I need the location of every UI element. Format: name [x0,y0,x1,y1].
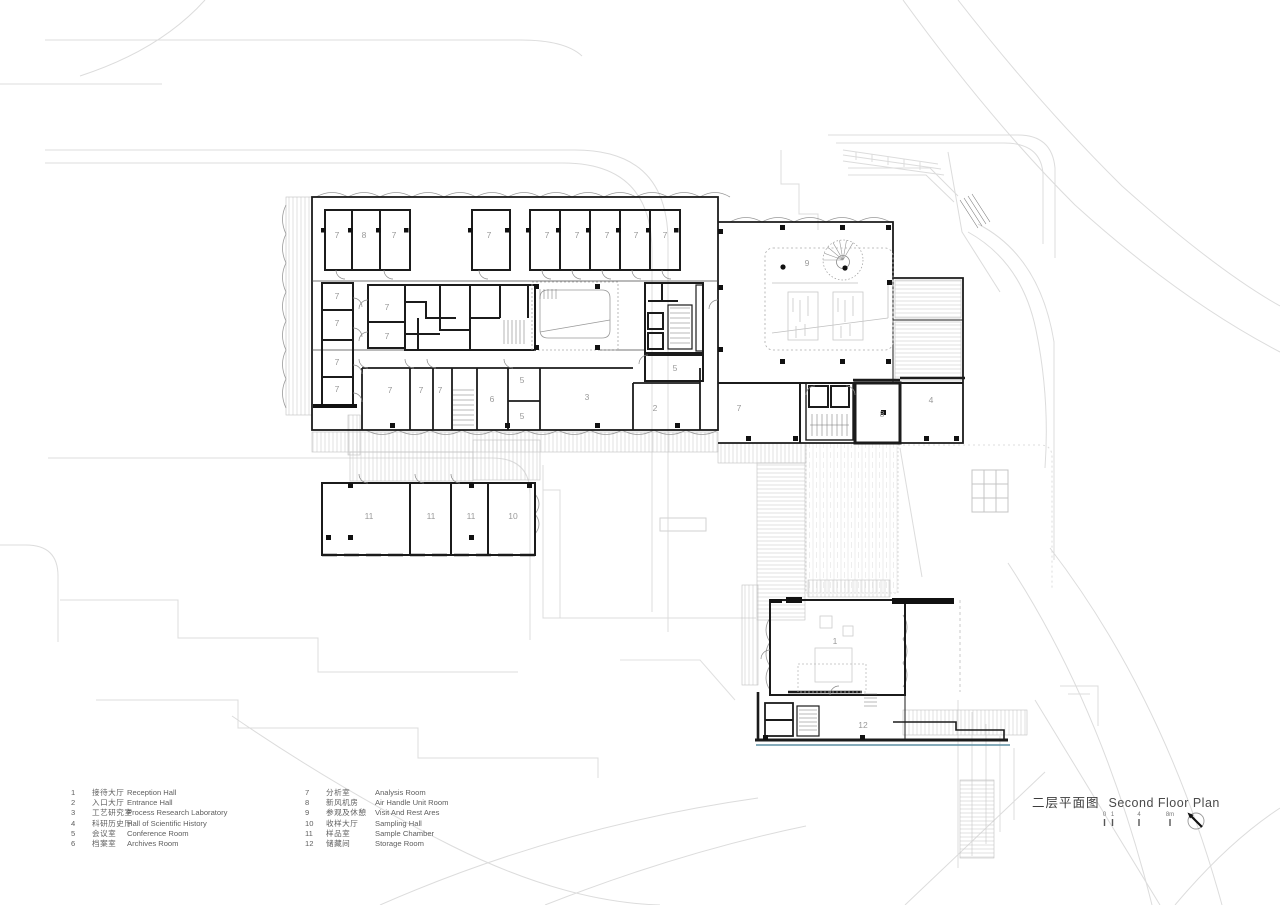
legend-name-en: Visit And Rest Ares [375,808,439,818]
legend-number: 1 [71,788,92,798]
floor-plan-sheet: { "title": { "zh": "二层平面图", "en": "Secon… [0,0,1280,905]
floor-plan-drawing: 787777777777777777655325978411111110112 … [0,0,1280,905]
legend-number: 6 [71,839,92,849]
legend-row: 3工艺研究室Process Research Laboratory [71,808,227,818]
legend-column-1: 1接待大厅Reception Hall2入口大厅Entrance Hall3工艺… [71,788,227,849]
scale-tick-8m: 8m [1166,812,1174,818]
legend-row: 2入口大厅Entrance Hall [71,798,227,808]
room-number-label: 2 [653,403,658,413]
legend-name-zh: 分析室 [326,788,375,798]
legend-name-en: Process Research Laboratory [127,808,227,818]
legend-name-zh: 参观及休憩 [326,808,375,818]
hall1-furniture [798,616,866,692]
legend-name-en: Reception Hall [127,788,176,798]
legend-number: 5 [71,829,92,839]
legend-name-zh: 新风机房 [326,798,375,808]
legend-name-en: Sample Chamber [375,829,434,839]
room-number-label: 7 [419,385,424,395]
room-number-label: 7 [438,385,443,395]
legend-name-zh: 样品室 [326,829,375,839]
legend-name-zh: 收样大厅 [326,819,375,829]
room-number-label: 12 [858,720,868,730]
legend-number: 9 [305,808,326,818]
legend-name-en: Analysis Room [375,788,426,798]
legend-row: 12储藏间Storage Room [305,839,448,849]
room-number-label: 1 [833,636,838,646]
legend-name-en: Conference Room [127,829,189,839]
legend-name-en: Hall of Scientific History [127,819,207,829]
legend-number: 11 [305,829,326,839]
exhibit-zone [765,248,893,350]
room-number-label: 5 [520,375,525,385]
room-number-label: 7 [335,230,340,240]
hatched-areas [286,197,1027,858]
room-number-label: 7 [634,230,639,240]
scale-bar: 0 1 4 8m [1103,812,1174,826]
room-number-label: 7 [388,385,393,395]
drawing-title-zh: 二层平面图 [1032,792,1100,811]
room-number-label: 3 [585,392,590,402]
room-number-label: 8 [880,409,885,419]
legend-number: 2 [71,798,92,808]
drawing-title-en: Second Floor Plan [1109,796,1220,810]
legend-name-zh: 工艺研究室 [92,808,127,818]
legend-row: 1接待大厅Reception Hall [71,788,227,798]
legend-number: 4 [71,819,92,829]
room-number-label: 8 [362,230,367,240]
site-context [0,0,1280,905]
legend-name-en: Air Handle Unit Room [375,798,448,808]
room-number-label: 9 [805,258,810,268]
legend-row: 9参观及休憩Visit And Rest Ares [305,808,448,818]
legend-row: 7分析室Analysis Room [305,788,448,798]
room-number-label: 4 [929,395,934,405]
scale-tick-1: 1 [1111,812,1115,818]
legend-row: 5会议室Conference Room [71,829,227,839]
legend-number: 8 [305,798,326,808]
legend-name-zh: 储藏间 [326,839,375,849]
room-number-label: 5 [673,363,678,373]
room-number-label: 7 [545,230,550,240]
spiral-stair [823,240,863,280]
room-number-label: 7 [487,230,492,240]
room-number-label: 7 [335,318,340,328]
legend-number: 12 [305,839,326,849]
legend-name-zh: 会议室 [92,829,127,839]
room-number-label: 7 [385,302,390,312]
room-number-label: 10 [508,511,518,521]
room-number-label: 7 [737,403,742,413]
legend-name-en: Entrance Hall [127,798,173,808]
room-number-label: 7 [335,291,340,301]
room-number-label: 7 [575,230,580,240]
legend-row: 11样品室Sample Chamber [305,829,448,839]
room-number-label: 7 [335,357,340,367]
room-number-label: 7 [605,230,610,240]
legend-number: 10 [305,819,326,829]
title-block: 二层平面图 Second Floor Plan [1032,792,1220,811]
legend-name-zh: 档案室 [92,839,127,849]
legend-row: 4科研历史厅Hall of Scientific History [71,819,227,829]
legend-number: 7 [305,788,326,798]
legend-name-en: Storage Room [375,839,424,849]
room-number-label: 6 [490,394,495,404]
legend-name-en: Sampling Hall [375,819,422,829]
legend-name-zh: 接待大厅 [92,788,127,798]
legend-row: 6档案室Archives Room [71,839,227,849]
room-number-label: 11 [365,511,374,521]
room-number-label: 7 [385,331,390,341]
legend-name-zh: 入口大厅 [92,798,127,808]
room-number-label: 7 [335,384,340,394]
room-number-label: 7 [392,230,397,240]
room-number-label: 5 [520,411,525,421]
legend-name-en: Archives Room [127,839,178,849]
legend-row: 8新风机房Air Handle Unit Room [305,798,448,808]
north-arrow-icon [1188,813,1205,830]
room-number-label: 11 [467,511,476,521]
room-number-label: 7 [663,230,668,240]
legend-name-zh: 科研历史厅 [92,819,127,829]
legend-row: 10收样大厅Sampling Hall [305,819,448,829]
scale-tick-4: 4 [1137,812,1141,818]
legend-number: 3 [71,808,92,818]
legend-column-2: 7分析室Analysis Room8新风机房Air Handle Unit Ro… [305,788,448,849]
room-number-label: 11 [427,511,436,521]
